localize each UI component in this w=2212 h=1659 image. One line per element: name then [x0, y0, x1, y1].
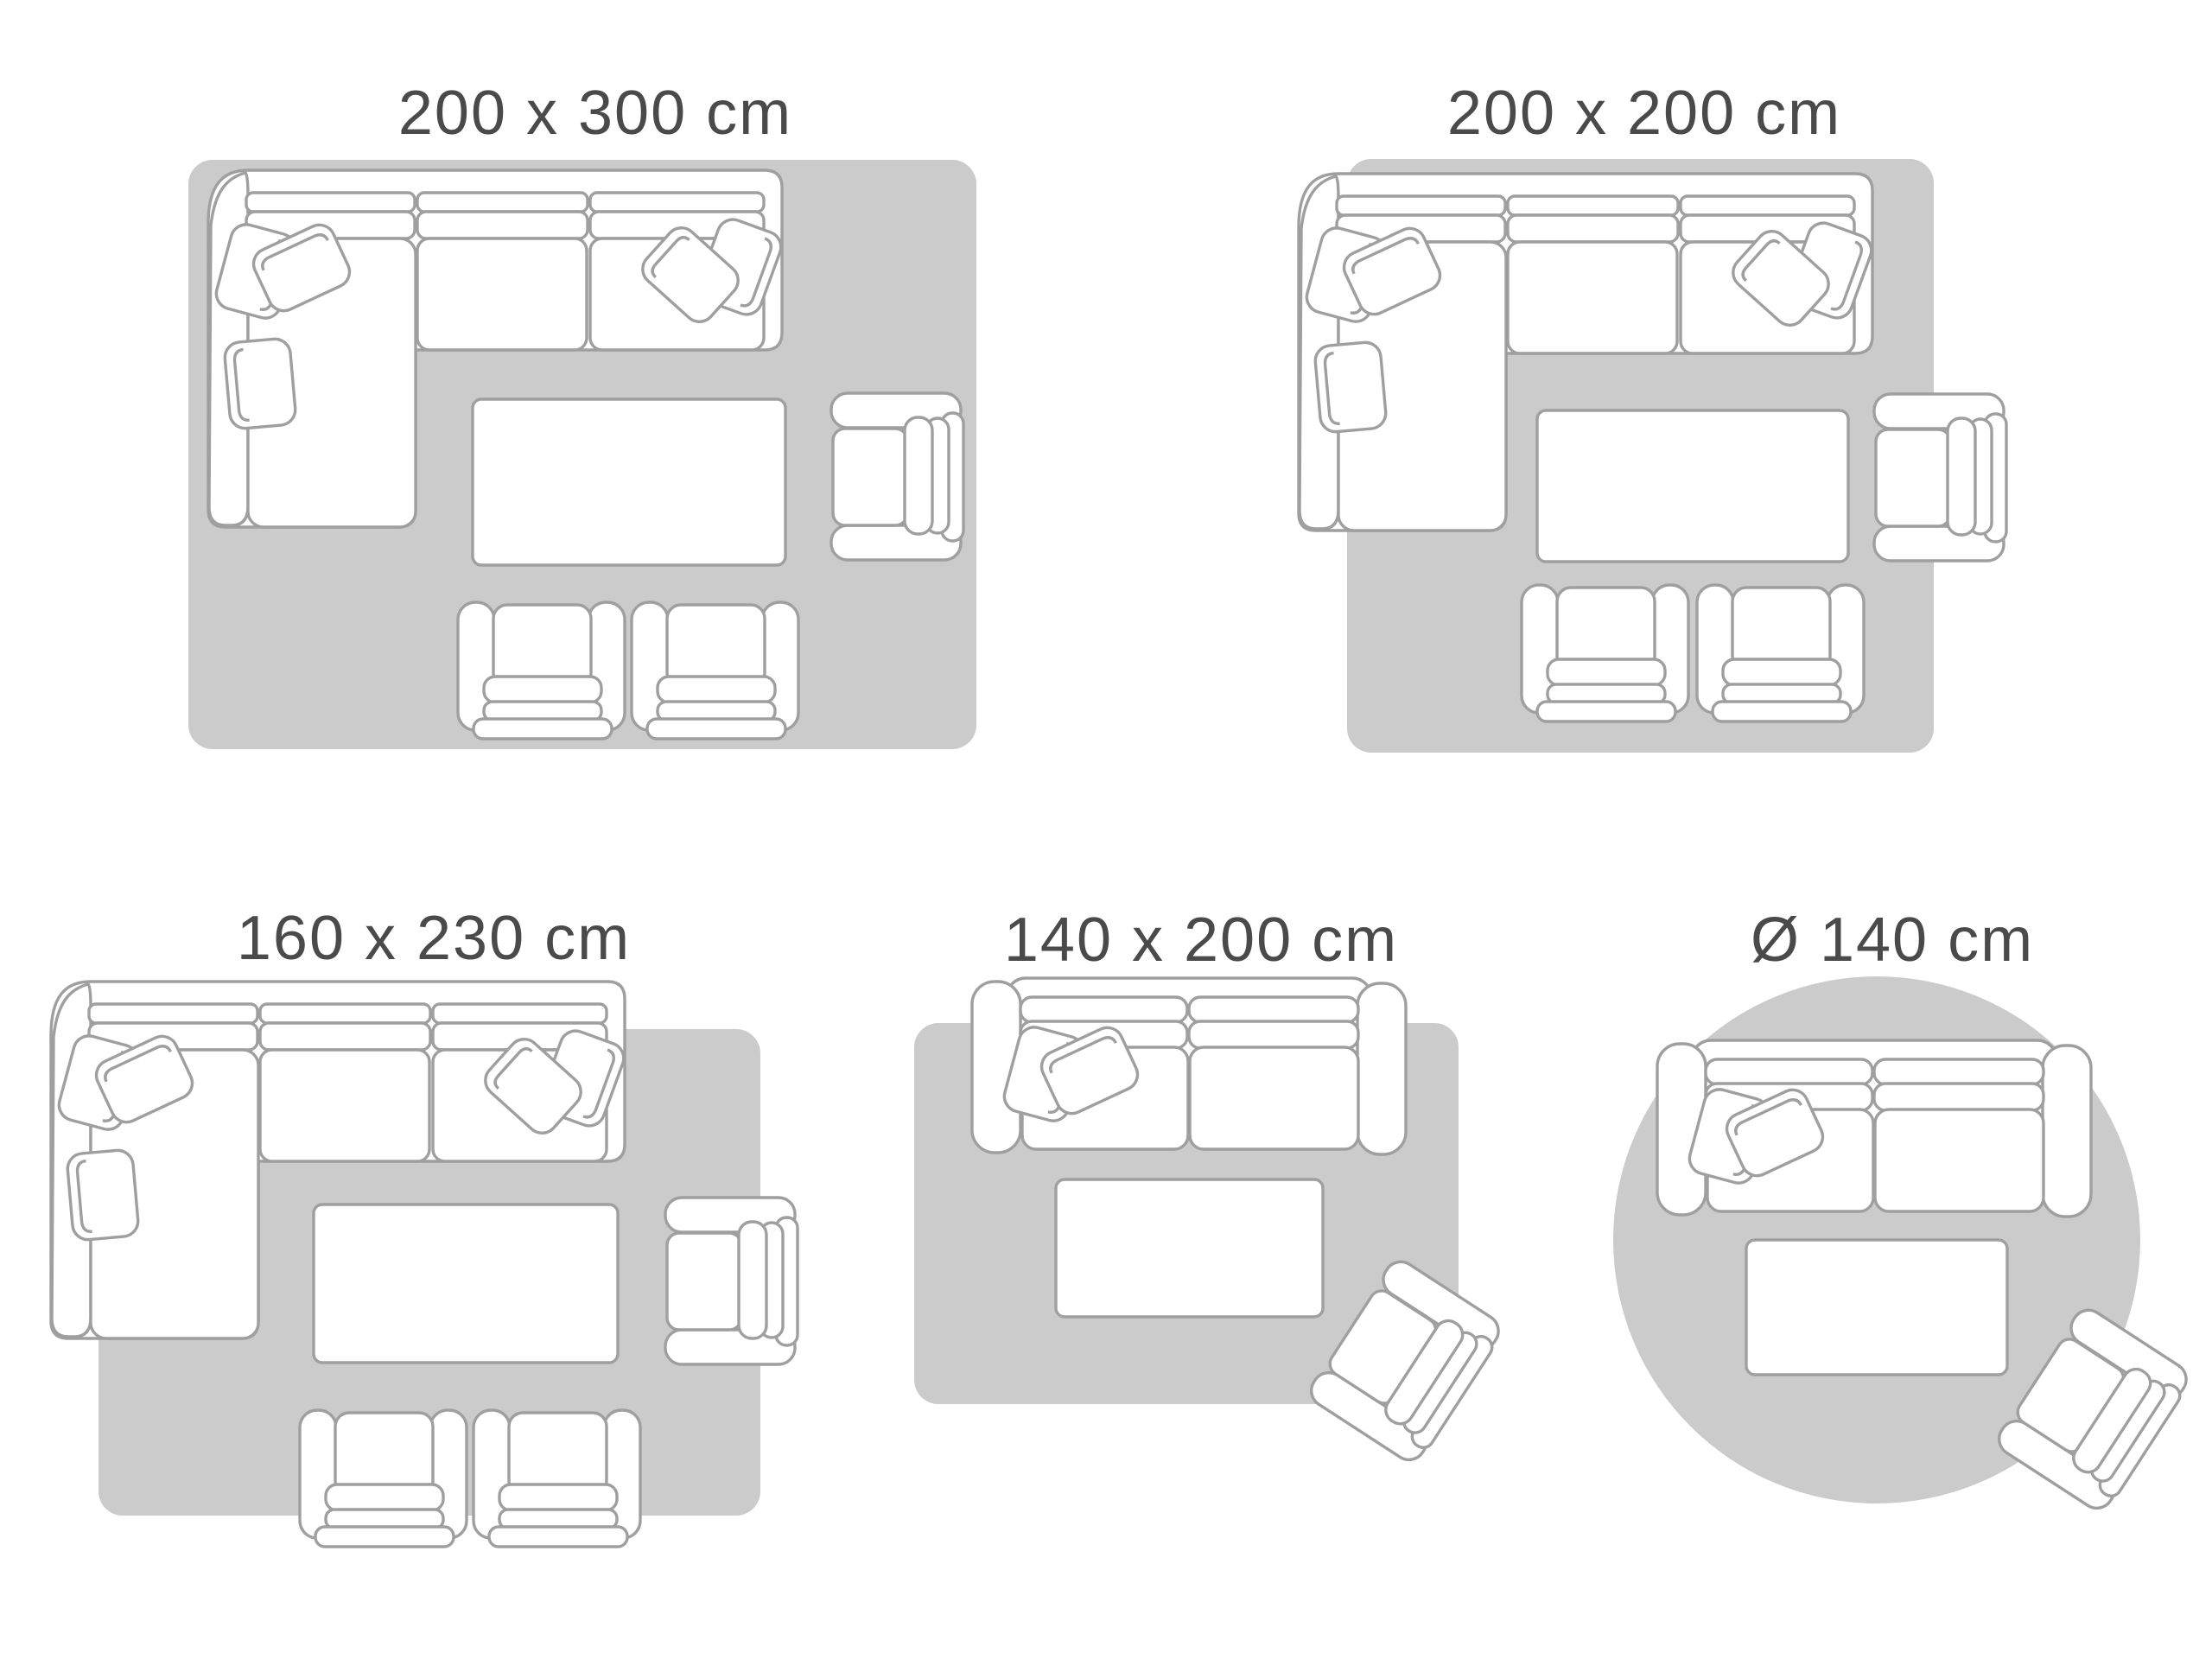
svg-text:160 x 230 cm: 160 x 230 cm: [237, 904, 631, 973]
svg-text:140 x 200 cm: 140 x 200 cm: [1004, 906, 1398, 975]
svg-text:200 x 300 cm: 200 x 300 cm: [398, 79, 792, 148]
svg-text:Ø 140 cm: Ø 140 cm: [1751, 906, 2034, 975]
svg-text:200 x 200 cm: 200 x 200 cm: [1447, 79, 1841, 148]
